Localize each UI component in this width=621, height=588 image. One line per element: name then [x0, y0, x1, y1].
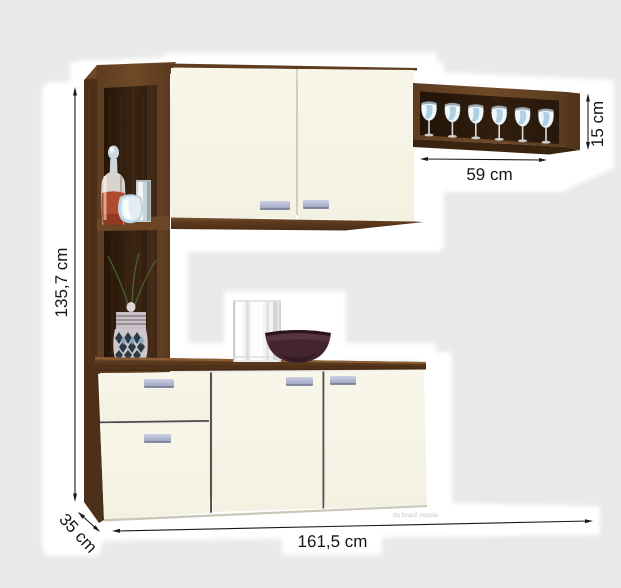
- svg-text:15 cm: 15 cm: [588, 101, 607, 147]
- svg-text:do brasil mobile: do brasil mobile: [393, 512, 439, 519]
- svg-text:59 cm: 59 cm: [466, 165, 512, 184]
- svg-text:135,7 cm: 135,7 cm: [52, 248, 71, 318]
- svg-text:161,5 cm: 161,5 cm: [298, 532, 368, 551]
